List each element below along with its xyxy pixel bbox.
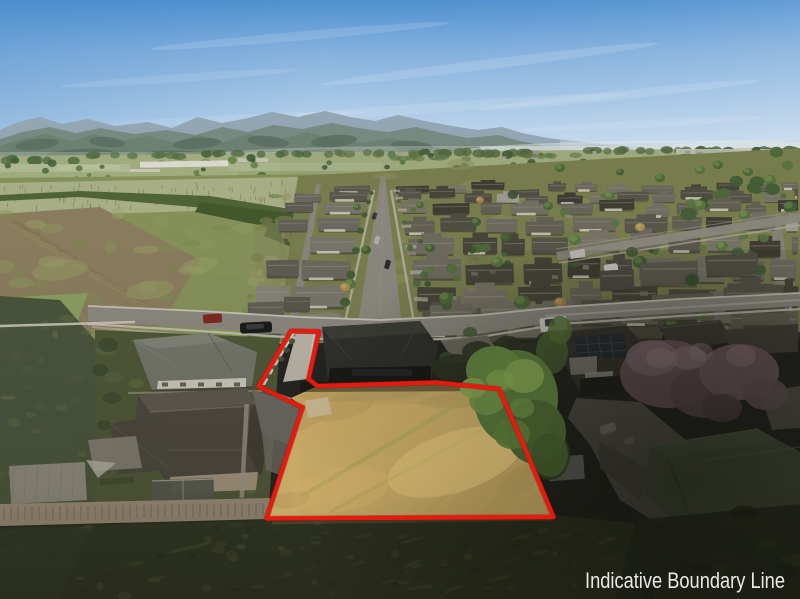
svg-text:Indicative Boundary Line: Indicative Boundary Line	[585, 568, 785, 593]
